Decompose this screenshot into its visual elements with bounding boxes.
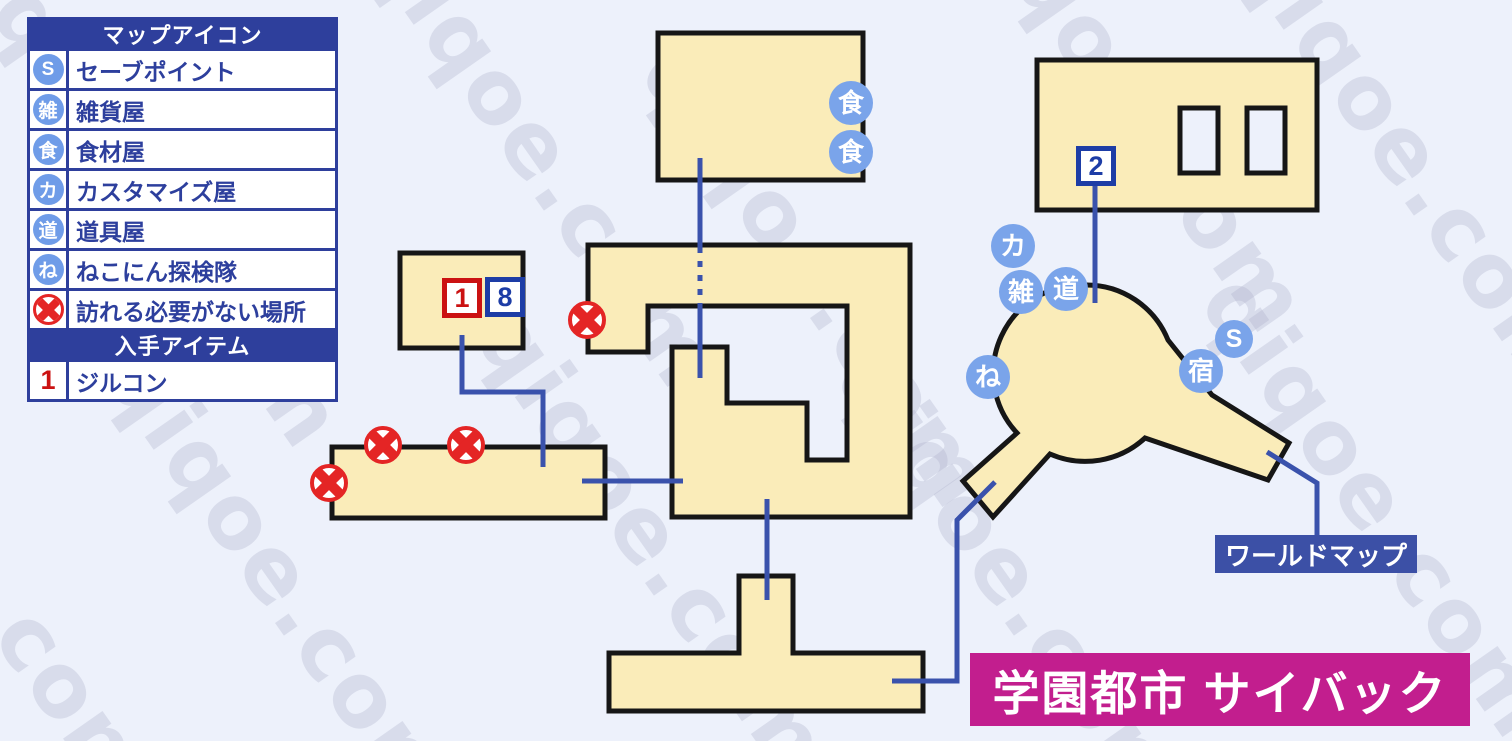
- exit-2-marker: 2: [1076, 146, 1116, 186]
- no-visit-icon: [312, 466, 346, 500]
- legend-label: ねこにん探検隊: [69, 251, 335, 288]
- no-visit-icon: [449, 428, 483, 462]
- nekonin-icon: ね: [33, 254, 64, 285]
- legend-label: 食材屋: [69, 131, 335, 168]
- save-point-icon: S: [1215, 320, 1253, 358]
- item-shop-icon: 道: [33, 214, 64, 245]
- legend-label: 道具屋: [69, 211, 335, 248]
- legend-row-customize-shop: カ カスタマイズ屋: [30, 171, 335, 208]
- world-map-exit-label: ワールドマップ: [1215, 535, 1417, 573]
- food-shop-icon: 食: [829, 81, 873, 125]
- game-map-page: qiqoe.com qiqoe.com qiqoe.com qiqoe.com …: [0, 0, 1512, 741]
- legend-label: カスタマイズ屋: [69, 171, 335, 208]
- food-shop-icon: 食: [829, 130, 873, 174]
- legend-label: ジルコン: [69, 362, 335, 399]
- customize-shop-icon: カ: [33, 174, 64, 205]
- general-store-icon: 雑: [999, 270, 1043, 314]
- building-courtyard: [1180, 108, 1218, 173]
- inn-icon: 宿: [1179, 349, 1223, 393]
- building-courtyard: [1247, 108, 1285, 173]
- item-shop-icon: 道: [1044, 267, 1088, 311]
- legend-header-items: 入手アイテム: [30, 331, 335, 359]
- legend-label: セーブポイント: [69, 51, 335, 88]
- legend-header-icons: マップアイコン: [30, 20, 335, 48]
- legend-row-no-visit: 訪れる必要がない場所: [30, 291, 335, 328]
- legend-row-item-shop: 道 道具屋: [30, 211, 335, 248]
- legend-label: 訪れる必要がない場所: [69, 291, 335, 328]
- legend-label: 雑貨屋: [69, 91, 335, 128]
- food-shop-icon: 食: [33, 134, 64, 165]
- legend-row-item-zircon: 1 ジルコン: [30, 362, 335, 399]
- item-1-marker: 1: [442, 278, 482, 318]
- no-visit-icon: [366, 428, 400, 462]
- no-visit-icon: [33, 294, 64, 325]
- no-visit-icon: [570, 303, 604, 337]
- item-number: 1: [40, 365, 55, 396]
- legend-row-save: S セーブポイント: [30, 51, 335, 88]
- nekonin-icon: ね: [966, 355, 1010, 399]
- legend-row-nekonin: ね ねこにん探検隊: [30, 251, 335, 288]
- plaza-roundabout: [963, 285, 1289, 517]
- map-legend: マップアイコン S セーブポイント 雑 雑貨屋 食 食材屋 カ カスタマイズ屋 …: [27, 17, 338, 402]
- building-central-complex: [588, 245, 910, 517]
- exit-8-marker: 8: [485, 277, 525, 317]
- legend-row-general-store: 雑 雑貨屋: [30, 91, 335, 128]
- page-title: 学園都市 サイバック: [970, 653, 1470, 726]
- customize-shop-icon: カ: [991, 224, 1035, 268]
- save-point-icon: S: [33, 54, 64, 85]
- legend-row-food-shop: 食 食材屋: [30, 131, 335, 168]
- general-store-icon: 雑: [33, 94, 64, 125]
